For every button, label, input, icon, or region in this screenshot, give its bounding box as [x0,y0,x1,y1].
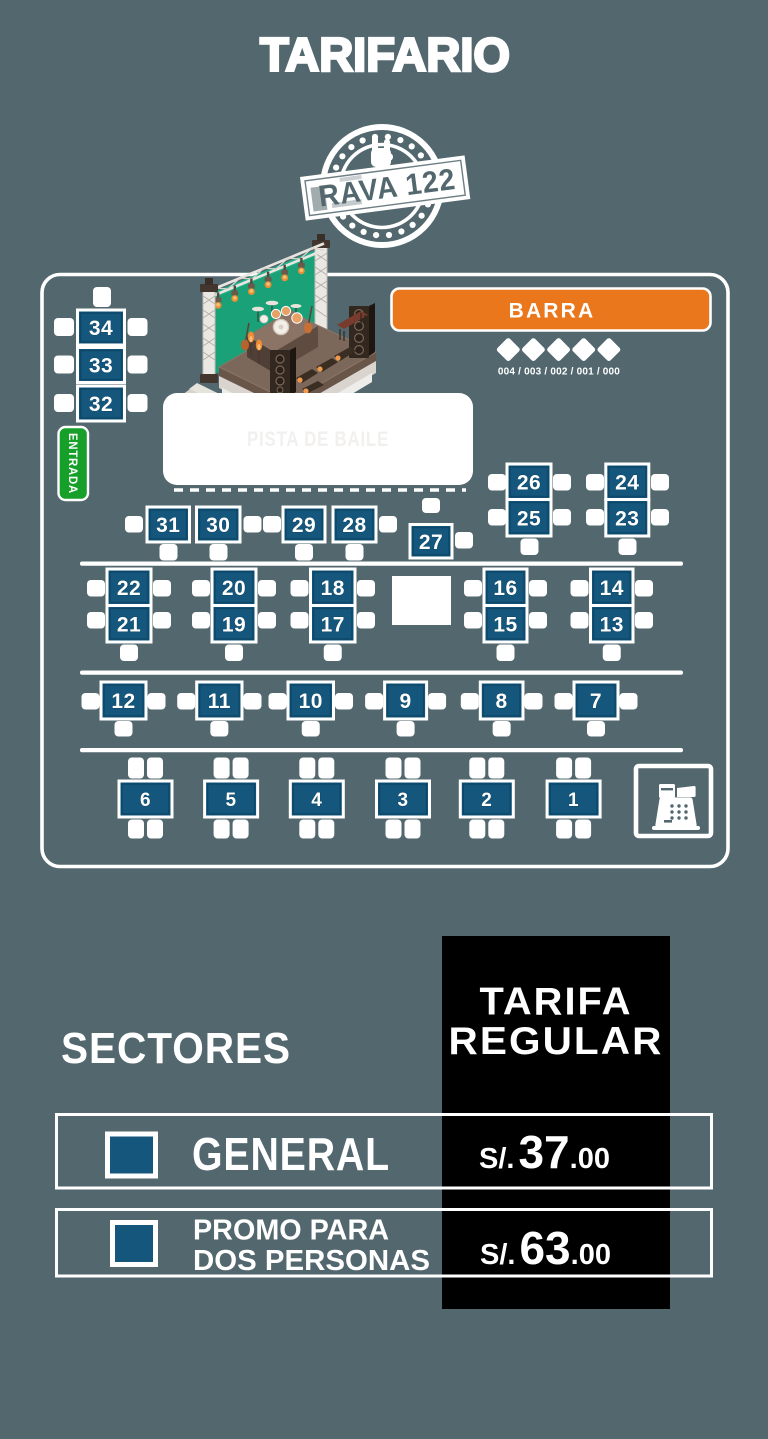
svg-text:6: 6 [140,790,151,811]
svg-text:PROMO PARA: PROMO PARA [193,1215,389,1247]
svg-text:32: 32 [89,393,113,416]
svg-text:18: 18 [321,577,345,600]
svg-text:26: 26 [517,471,541,494]
svg-text:ENTRADA: ENTRADA [66,433,78,494]
svg-text:7: 7 [590,690,602,713]
svg-text:30: 30 [206,514,230,537]
svg-text:10: 10 [299,690,323,713]
svg-text:19: 19 [222,613,246,636]
svg-text:25: 25 [517,507,541,530]
svg-text:12: 12 [111,690,135,713]
svg-text:29: 29 [292,514,316,537]
svg-text:GENERAL: GENERAL [192,1128,390,1180]
svg-text:TARIFARIO: TARIFARIO [260,28,510,81]
svg-text:TARIFA: TARIFA [480,981,633,1024]
svg-text:004 / 003 / 002 / 001 / 000: 004 / 003 / 002 / 001 / 000 [498,367,620,378]
svg-text:DOS PERSONAS: DOS PERSONAS [193,1245,430,1277]
svg-text:23: 23 [615,507,639,530]
svg-text:28: 28 [342,514,366,537]
svg-text:16: 16 [493,577,517,600]
svg-text:BARRA: BARRA [509,300,596,323]
svg-text:31: 31 [156,514,180,537]
svg-text:20: 20 [222,577,246,600]
svg-text:2: 2 [481,790,492,811]
svg-text:34: 34 [89,317,113,340]
svg-text:8: 8 [496,690,508,713]
svg-text:14: 14 [600,577,624,600]
svg-text:17: 17 [321,613,345,636]
svg-text:5: 5 [226,790,237,811]
svg-text:REGULAR: REGULAR [449,1020,664,1063]
svg-text:13: 13 [600,613,624,636]
svg-text:1: 1 [568,790,579,811]
svg-text:33: 33 [89,355,113,378]
svg-text:21: 21 [117,613,141,636]
svg-text:SECTORES: SECTORES [61,1024,291,1073]
svg-text:3: 3 [397,790,408,811]
svg-text:24: 24 [615,471,639,494]
svg-text:15: 15 [493,613,517,636]
svg-text:11: 11 [208,690,231,713]
svg-text:PISTA DE BAILE: PISTA DE BAILE [247,428,389,451]
svg-text:27: 27 [419,531,443,554]
svg-text:9: 9 [400,690,412,713]
svg-text:22: 22 [117,577,141,600]
svg-text:4: 4 [311,790,322,811]
